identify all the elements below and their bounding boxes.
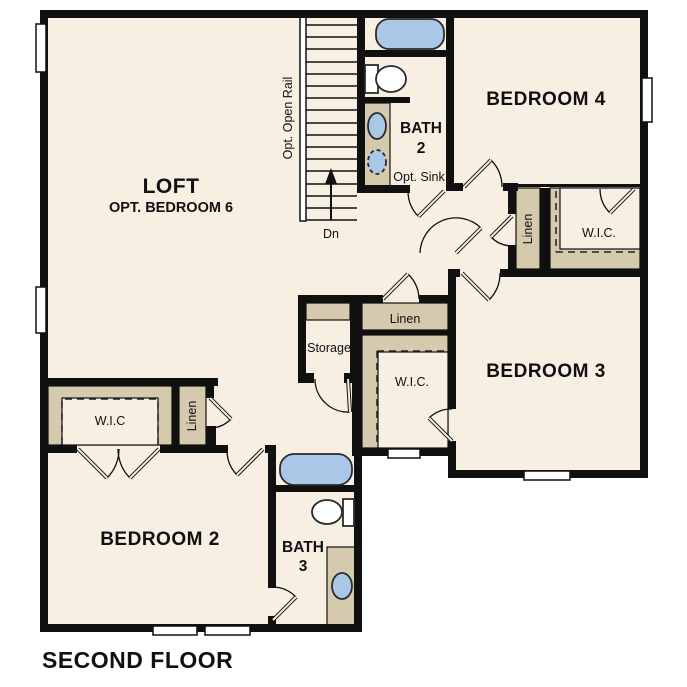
bedroom2-north-wall-b	[160, 445, 228, 453]
bedroom2-label: BEDROOM 2	[100, 529, 220, 550]
linen-right-label: Linen	[521, 214, 535, 245]
bath2-south-wall	[357, 185, 410, 193]
window-marker	[205, 626, 250, 635]
wic-bedroom2-east-wall	[172, 386, 179, 446]
plan-title: SECOND FLOOR	[42, 647, 233, 673]
closet-front-line	[518, 184, 640, 187]
linen-center-label: Linen	[390, 312, 421, 326]
storage-shelf	[306, 303, 350, 320]
window-marker	[36, 287, 46, 333]
bathtub-icon	[280, 454, 352, 485]
sink-icon	[368, 113, 386, 139]
linen-center-divider	[362, 330, 448, 335]
linen-left-east-wall-b	[206, 426, 216, 445]
exterior-wall-top	[40, 10, 648, 18]
loft-label: LOFT	[143, 175, 200, 198]
storage-west-wall	[298, 295, 306, 375]
bedroom3-top-wall-b	[500, 269, 640, 277]
storage-south-stub-a	[298, 373, 314, 383]
window-marker	[524, 471, 570, 480]
bedroom3-west-wall-a	[448, 269, 456, 409]
bath2-tub-wall	[357, 50, 448, 57]
storage-label: Storage	[307, 341, 351, 355]
window-marker	[153, 626, 197, 635]
bath2-number: 2	[417, 140, 426, 157]
linen-right-east-wall	[540, 188, 550, 269]
bath2-bedroom4-wall	[446, 10, 454, 191]
sink-icon	[332, 573, 352, 599]
bathtub-icon	[376, 19, 444, 49]
wic-bedroom2-label: W.I.C	[95, 414, 126, 428]
toilet-icon	[312, 499, 354, 526]
stair-down-label: Dn	[323, 227, 339, 241]
bath3-west-wall	[268, 445, 276, 588]
bath3-number: 3	[299, 558, 308, 575]
bedroom3-label: BEDROOM 3	[486, 361, 606, 382]
bedroom2-closet-north-wall	[40, 378, 218, 386]
window-marker	[36, 24, 46, 72]
bedroom4-label: BEDROOM 4	[486, 89, 606, 110]
bedroom2-north-wall-a	[40, 445, 77, 453]
loft-option-label: OPT. BEDROOM 6	[109, 200, 233, 216]
linen-center-top-wall-b	[419, 295, 452, 303]
bath3-label: BATH	[282, 539, 324, 556]
bath2-label: BATH	[400, 120, 442, 137]
wic-center-west-wall	[352, 297, 362, 448]
linen-right-west-wall-a	[508, 188, 516, 214]
bedroom4-south-wall-a	[446, 183, 463, 191]
window-marker	[642, 78, 652, 122]
bath3-east-wall	[354, 448, 362, 632]
linen-left-label: Linen	[185, 401, 199, 432]
storage-north-wall	[298, 295, 358, 303]
linen-center-top-wall-a	[352, 295, 383, 303]
wic-bedroom3-floor	[378, 352, 448, 448]
floor-plan-page: LOFT OPT. BEDROOM 6 BEDROOM 4 BEDROOM 3 …	[0, 0, 687, 687]
exterior-wall-bottom	[40, 624, 362, 632]
bath2-toilet-wall	[361, 97, 410, 103]
optional-sink-icon	[368, 150, 386, 174]
bath3-tub-wall	[276, 485, 354, 492]
window-marker	[388, 449, 420, 458]
stair-rail-label: Opt. Open Rail	[281, 77, 295, 160]
toilet-icon	[365, 65, 406, 93]
wic-bedroom4-label: W.I.C.	[582, 226, 616, 240]
linen-right-west-wall-b	[508, 245, 516, 271]
wic-bedroom3-label: W.I.C.	[395, 375, 429, 389]
bedroom3-west-wall-b	[448, 441, 456, 471]
bath2-opt-sink-label: Opt. Sink	[393, 170, 445, 184]
stair-open-rail	[300, 13, 306, 221]
floor-plan-drawing: LOFT OPT. BEDROOM 6 BEDROOM 4 BEDROOM 3 …	[0, 0, 687, 687]
linen-left-east-wall-a	[206, 386, 214, 398]
